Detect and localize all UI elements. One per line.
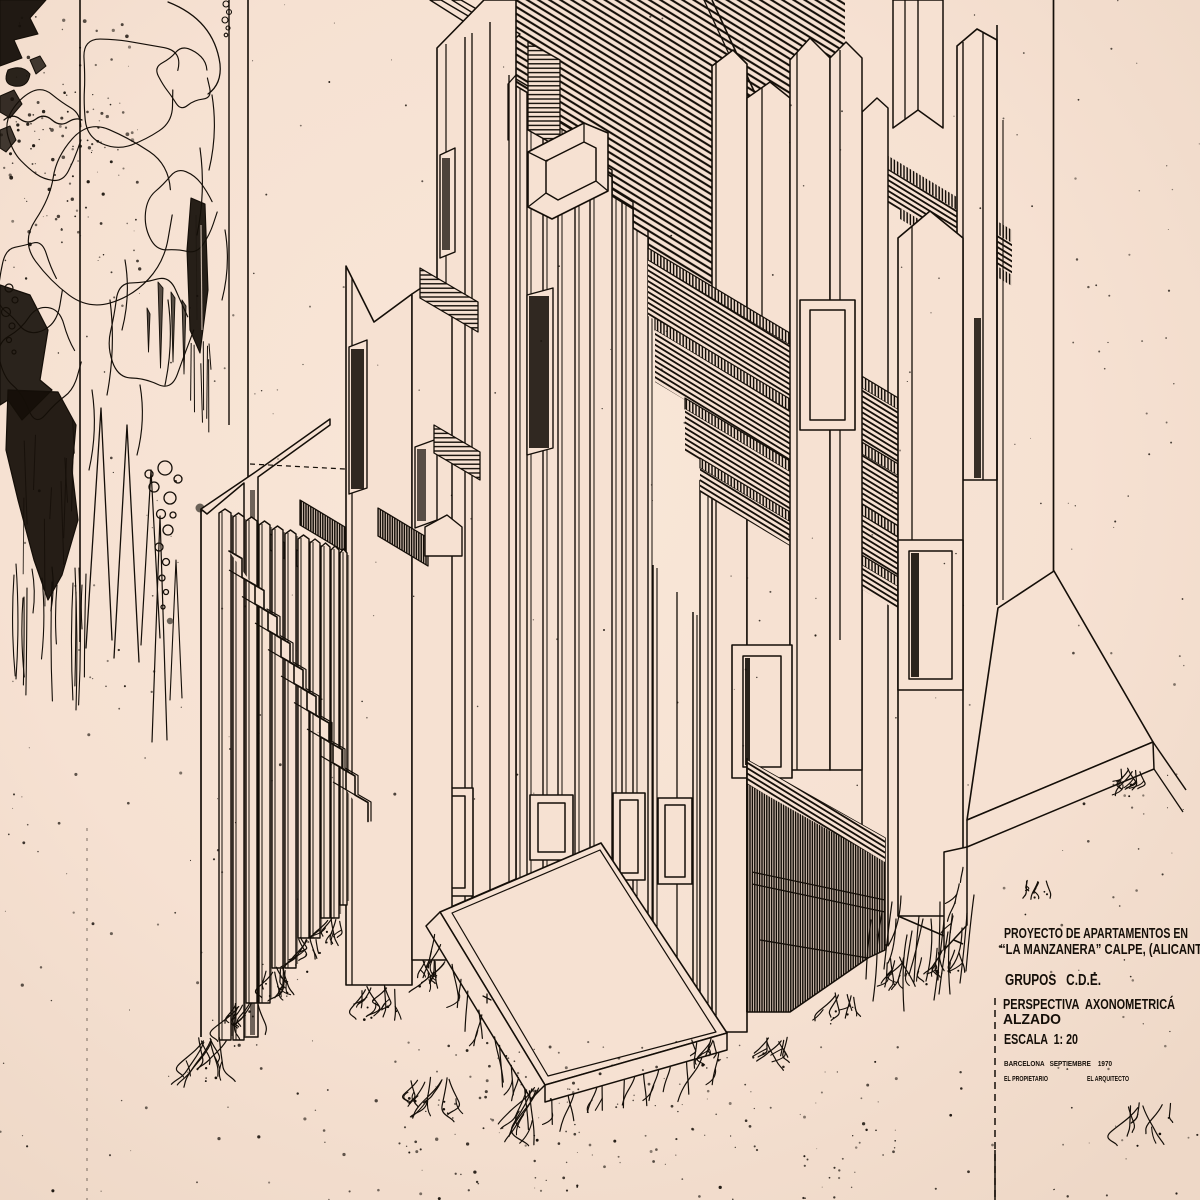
svg-text:EL PROPIETARIO: EL PROPIETARIO <box>1004 1076 1048 1083</box>
svg-text:EL ARQUITECTO: EL ARQUITECTO <box>1087 1076 1129 1083</box>
svg-text:ESCALA 1: 20: ESCALA 1: 20 <box>1004 1031 1078 1048</box>
svg-text:“LA MANZANERA” CALPE, (ALICANT: “LA MANZANERA” CALPE, (ALICANT <box>1000 941 1200 958</box>
svg-text:GRUPOS C.D.E.: GRUPOS C.D.E. <box>1005 972 1101 989</box>
svg-text:ALZADO: ALZADO <box>1003 1011 1061 1028</box>
svg-text:PROYECTO DE APARTAMENTOS EN: PROYECTO DE APARTAMENTOS EN <box>1004 925 1188 942</box>
